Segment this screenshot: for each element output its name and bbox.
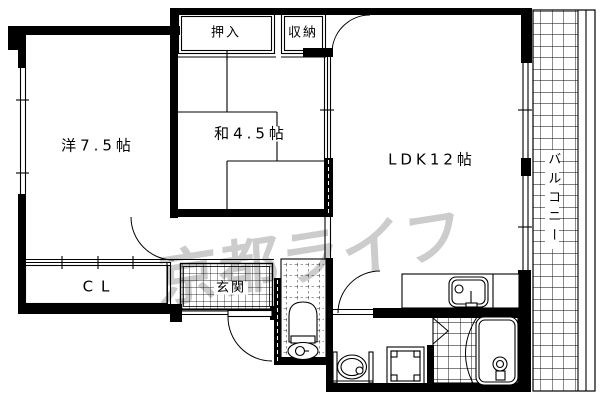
toilet-icon [288, 302, 318, 360]
washing-machine-pan-icon [387, 347, 424, 385]
floor-plan-drawing [0, 0, 600, 400]
japanese-room-label: 和4.5帖 [212, 127, 290, 142]
balcony-floor-hatch [533, 10, 595, 391]
entrance-door-arc [228, 317, 272, 361]
entrance-door-leaf [228, 311, 272, 317]
storage-door-arc [332, 15, 370, 53]
bedroom-door-arc [131, 217, 174, 260]
balcony-label: バルコニー [545, 150, 559, 249]
floor-plan: 京都ライフ [0, 0, 600, 400]
ldk-label: LDK12帖 [386, 153, 478, 168]
western-room-label: 洋7.5帖 [59, 139, 137, 154]
oshiire-closet-label: 押入 [209, 27, 243, 40]
bathtub-icon [476, 317, 518, 385]
kitchen-sink-icon [402, 274, 519, 308]
washbasin-icon [333, 352, 373, 383]
storage-label: 収納 [286, 27, 320, 40]
washroom-door-arc [338, 271, 380, 313]
entrance-label: 玄関 [214, 282, 248, 295]
closet-label: CL [81, 280, 120, 295]
